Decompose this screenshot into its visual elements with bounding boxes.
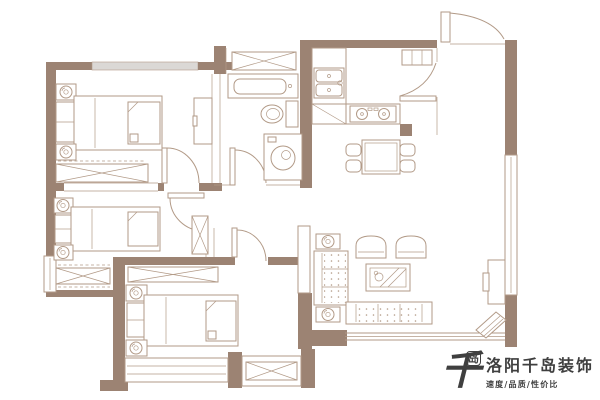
toilet-icon xyxy=(261,101,298,127)
washing-machine-icon xyxy=(264,134,302,180)
nightstand-icon xyxy=(54,198,73,213)
sofa-icon xyxy=(314,251,348,305)
wardrobe-x-icon xyxy=(56,265,110,287)
floor-plan-canvas: 千 岛 洛阳千岛装饰 速度/品质/性价比 xyxy=(0,0,600,400)
brand-mark-icon: 千 岛 xyxy=(441,348,479,394)
tall-wardrobe-icon xyxy=(193,98,212,144)
dining-chair-icon xyxy=(346,144,361,156)
bedroom-1 xyxy=(56,84,212,182)
brand-text: 洛阳千岛装饰 速度/品质/性价比 xyxy=(486,352,594,390)
floor-plan-drawing xyxy=(0,0,600,400)
bed-icon xyxy=(74,96,162,150)
bay-storage-cabinet xyxy=(242,356,301,386)
nightstand-icon xyxy=(56,84,76,100)
bed-icon xyxy=(144,295,238,346)
stove-icon xyxy=(350,106,396,122)
nightstand-icon xyxy=(126,340,147,356)
wardrobe-x-icon xyxy=(56,161,148,182)
kitchen xyxy=(312,48,432,124)
brand-mark-sub: 岛 xyxy=(466,351,481,366)
side-table-icon xyxy=(316,234,340,249)
coffee-table-icon xyxy=(366,264,410,291)
kitchen-sink-icon xyxy=(314,68,344,98)
wardrobe-x-icon xyxy=(192,216,208,254)
tv-cabinet-icon xyxy=(483,260,505,304)
dining-table-icon xyxy=(362,140,400,174)
decor-rug-icon xyxy=(476,312,506,338)
wardrobe-x-icon xyxy=(128,267,218,282)
corner-cabinet xyxy=(312,104,346,124)
sofa-icon xyxy=(346,302,432,324)
bedroom-3 xyxy=(126,267,238,356)
hall-wall-column xyxy=(298,226,310,293)
bedroom1-door xyxy=(162,148,199,183)
window-left-bedroom2 xyxy=(44,256,56,292)
brand-logo: 千 岛 洛阳千岛装饰 速度/品质/性价比 xyxy=(441,348,594,394)
brand-company-name: 洛阳千岛装饰 xyxy=(486,352,594,376)
nightstand-icon xyxy=(54,245,73,260)
bathroom xyxy=(228,74,302,180)
nightstand-icon xyxy=(56,144,76,160)
side-table-icon xyxy=(316,307,340,322)
dining-chair-icon xyxy=(346,160,361,172)
bay-window-bedroom3 xyxy=(125,358,228,382)
armchair-icon xyxy=(396,236,426,258)
dining-chair-icon xyxy=(400,160,415,172)
fridge-icon xyxy=(402,50,432,65)
living-room xyxy=(314,234,506,338)
entry-door xyxy=(441,12,505,44)
window-top-bedroom1 xyxy=(92,62,198,70)
armchair-icon xyxy=(356,236,386,258)
vanity-icon xyxy=(228,74,298,98)
bathroom-door xyxy=(230,148,266,185)
dining-area xyxy=(346,140,415,174)
bed-icon xyxy=(71,207,160,251)
bathroom-window xyxy=(232,52,296,70)
brand-tagline: 速度/品质/性价比 xyxy=(486,379,594,390)
dining-chair-icon xyxy=(400,144,415,156)
bedroom3-door xyxy=(232,228,266,261)
kitchen-door xyxy=(400,63,436,101)
